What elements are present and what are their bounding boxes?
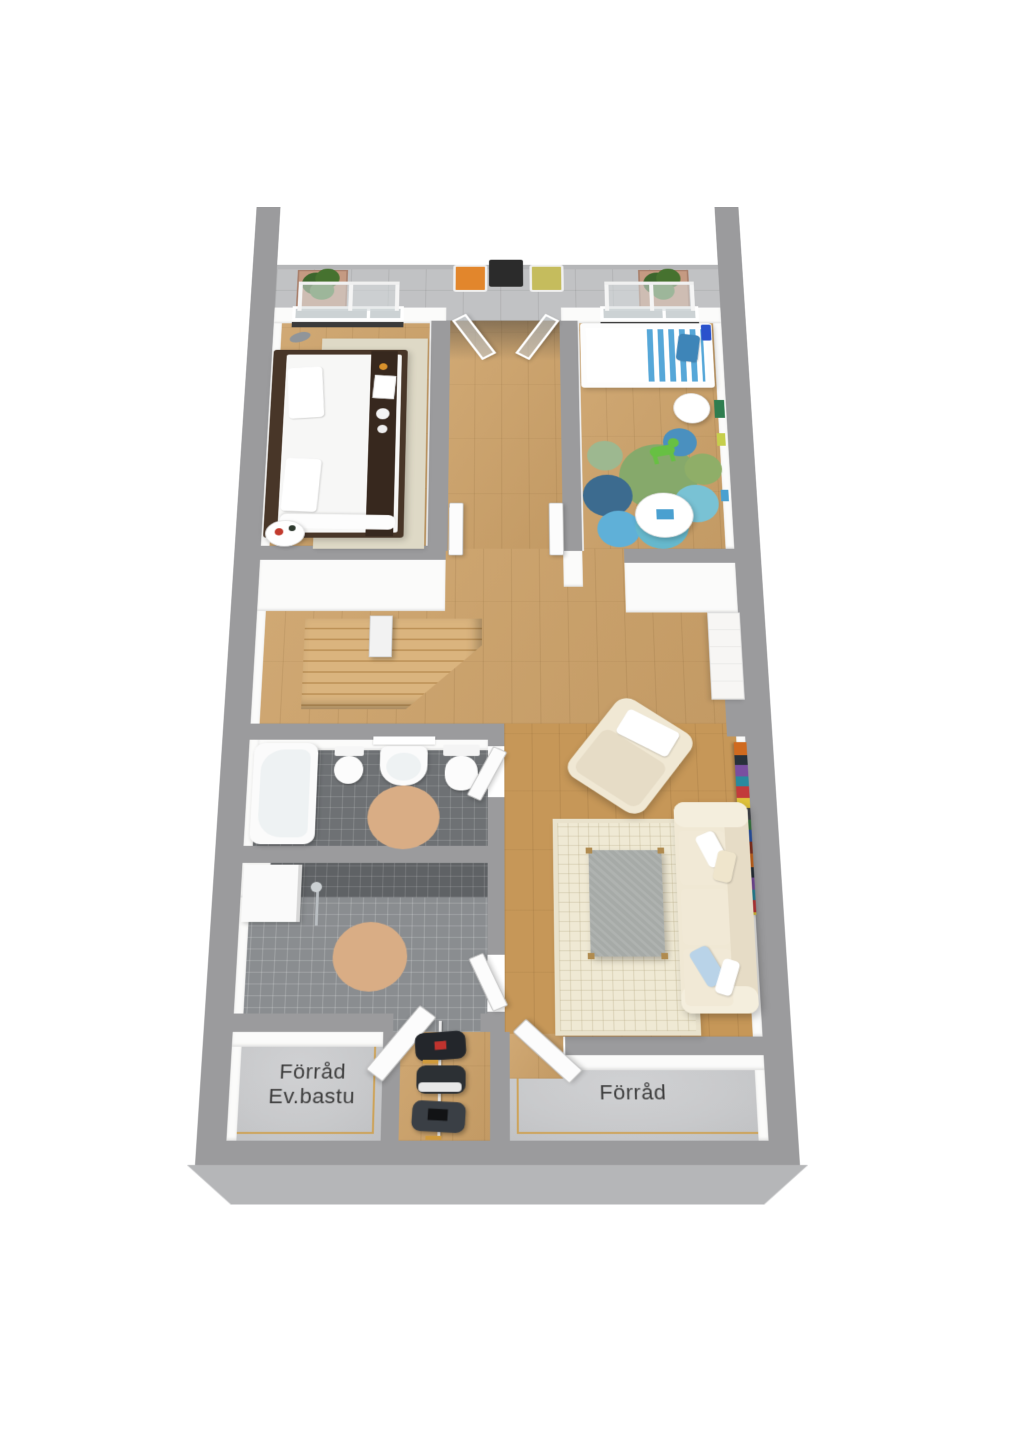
storage-right-label: Förråd <box>534 1080 732 1105</box>
bidet-bowl <box>333 756 363 784</box>
kids-south-wall-face <box>624 563 738 613</box>
kids-nightstand <box>673 393 711 423</box>
double-bed <box>263 350 408 538</box>
kids-wall-poster-blue <box>721 490 729 502</box>
kids-play-table <box>634 493 694 538</box>
closet-hanger <box>423 1060 439 1064</box>
toy-dog-legs <box>653 455 660 464</box>
storage-left-label-line1: Förråd <box>234 1060 392 1084</box>
closet-jacket-2 <box>416 1065 465 1093</box>
storage-left-label: Förråd Ev.bastu <box>232 1060 391 1109</box>
storage-right-north-face <box>565 1055 764 1070</box>
bedroom-door-leaf <box>448 503 463 556</box>
storage-left-north-wall <box>233 1014 394 1032</box>
table-leg <box>657 848 664 854</box>
tray-cup <box>377 425 387 433</box>
jacket-detail-white <box>418 1082 461 1091</box>
built-in-wardrobe <box>707 613 745 700</box>
lamp-shade <box>288 330 312 345</box>
bathtub <box>249 743 318 844</box>
outer-wall-bevel <box>184 1165 810 1204</box>
breakfast-tray-magazine <box>372 375 396 399</box>
bedroom-floor-lamp <box>286 326 312 346</box>
floor-plan-stage: Förråd Ev.bastu Förråd <box>0 0 1024 1448</box>
bed-runner <box>365 351 397 536</box>
balcony-chair-yellow <box>529 265 563 292</box>
table-leg <box>588 953 595 959</box>
railing-post <box>297 285 302 311</box>
chimney-block <box>725 698 773 736</box>
bidet-tank <box>335 746 365 756</box>
kids-wall-poster-yellow <box>717 433 726 446</box>
kids-table-book <box>655 508 676 521</box>
bathroom-south-wall <box>242 846 487 863</box>
outer-wall-bottom <box>195 1141 800 1165</box>
kids-bed-pillow <box>676 333 701 362</box>
bedside-bottle <box>289 525 296 531</box>
closet-hanger <box>425 1136 441 1140</box>
bedside-item-red <box>274 528 283 535</box>
toilet-tank <box>443 745 480 756</box>
sofa <box>673 802 759 1013</box>
tray-plate <box>376 408 390 419</box>
hallway-west-wall <box>426 321 451 551</box>
railing-post <box>649 285 654 311</box>
closet-jacket-3 <box>411 1100 466 1133</box>
table-leg <box>586 848 593 854</box>
storage-right-north-wall <box>565 1037 764 1056</box>
rug-circle <box>582 475 633 517</box>
bidet <box>330 746 368 785</box>
stair-newel-post <box>369 616 393 658</box>
closet-north-wall-stub <box>480 1014 490 1032</box>
storage-left-label-line2: Ev.bastu <box>232 1084 391 1109</box>
floor-plan: Förråd Ev.bastu Förråd <box>195 207 800 1165</box>
kids-door-leaf <box>549 503 564 556</box>
closet-east-wall <box>490 1032 510 1141</box>
kids-wall-poster-green <box>714 400 725 418</box>
washbasin <box>372 736 435 787</box>
kids-south-wall <box>624 549 735 563</box>
balcony-table <box>489 260 523 287</box>
closet-jacket-1 <box>414 1030 466 1061</box>
kids-bed <box>580 323 715 387</box>
bathroom-east-wall-b <box>487 797 504 955</box>
jacket-detail-red <box>434 1041 446 1050</box>
bed-pillow <box>287 366 324 418</box>
kids-balcony-railing <box>604 282 695 311</box>
tray-food <box>379 363 388 370</box>
railing-post <box>395 285 400 311</box>
basin-mirror <box>373 736 435 744</box>
bedroom-south-wall-face <box>257 560 446 611</box>
bedroom-balcony-railing <box>297 282 399 311</box>
sofa-cushion <box>681 889 731 945</box>
railing-post <box>604 285 609 311</box>
sofa-armrest-top <box>673 802 748 827</box>
kids-bed-blue-item <box>701 325 712 341</box>
table-leg <box>661 953 668 959</box>
hallway-east-wall-face <box>563 551 583 587</box>
railing-post <box>348 285 353 311</box>
shower-cabinet <box>241 865 302 922</box>
rug-circle <box>587 441 623 471</box>
bathtub-basin <box>257 749 311 837</box>
bed-pillow <box>280 458 322 512</box>
toy-dog-legs <box>669 453 676 462</box>
jacket-detail-dark <box>427 1108 448 1120</box>
storage-left-north-face <box>232 1032 383 1047</box>
balcony-chair-orange <box>453 265 487 292</box>
bathroom-east-wall-a <box>488 724 504 747</box>
coffee-table <box>588 850 665 956</box>
rug-circle <box>684 454 723 485</box>
